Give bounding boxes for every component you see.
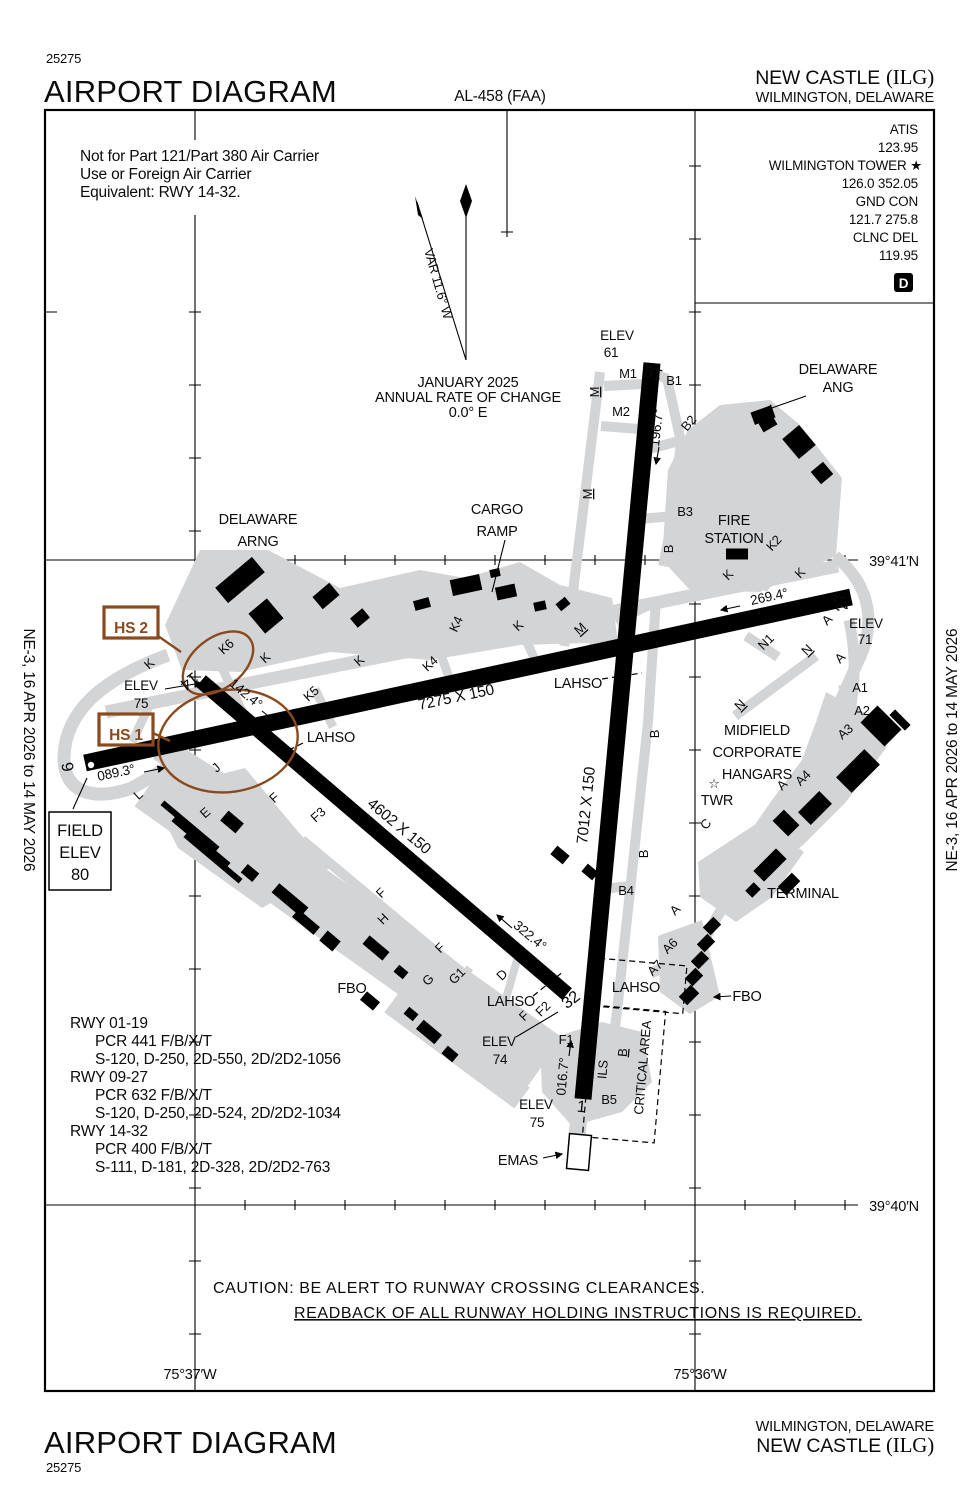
lahso-label: LAHSO	[307, 730, 355, 746]
city-state: WILMINGTON, DELAWARE	[756, 90, 935, 106]
elev-label: ELEV	[600, 328, 634, 343]
magnetic-north-arrowhead	[415, 196, 423, 219]
building	[550, 846, 569, 865]
restriction-note: Not for Part 121/Part 380 Air Carrier Us…	[80, 148, 319, 201]
taxiway-label-b: B	[661, 545, 676, 553]
taxiway-label-f1: F1	[559, 1032, 574, 1047]
true-north-arrowhead	[460, 184, 472, 218]
elev-label: ELEV	[519, 1097, 553, 1112]
variation-date: JANUARY 2025	[417, 375, 518, 391]
hs1-label: HS 1	[109, 727, 143, 744]
magnetic-variation-label: VAR 11.6° W	[421, 247, 456, 322]
footer-title: AIRPORT DIAGRAM	[44, 1425, 337, 1460]
footer-airport-icao: (ILG)	[886, 1433, 934, 1457]
airport-name-text: NEW CASTLE	[755, 67, 880, 89]
atis-d-letter: D	[899, 276, 909, 291]
margin-note-right: NE-3, 16 APR 2026 to 14 MAY 2026	[944, 629, 961, 872]
delaware-ang-label: ANG	[823, 380, 854, 396]
airport-icao: (ILG)	[886, 65, 934, 89]
taxiway-label-a1: A1	[852, 680, 868, 695]
note-line-3: Equivalent: RWY 14-32.	[80, 184, 240, 201]
rwy1-number: 1	[576, 1098, 587, 1117]
runway-data-table: RWY 01-19 PCR 441 F/B/X/T S-120, D-250, …	[70, 1015, 341, 1176]
taxiway-label-a: A	[832, 649, 849, 666]
fire-station-label: FIRE	[718, 513, 751, 529]
rwy32-elev: 74	[493, 1052, 508, 1067]
header: 25275 AIRPORT DIAGRAM AL-458 (FAA) NEW C…	[44, 51, 935, 109]
building-fire-station	[726, 549, 748, 560]
caution-line-2: READBACK OF ALL RUNWAY HOLDING INSTRUCTI…	[294, 1305, 862, 1322]
field-elev-label: FIELD	[57, 822, 103, 840]
field-elev-value: 80	[71, 866, 89, 884]
taxiway-label-b1: B1	[666, 373, 682, 388]
fire-station-label: STATION	[704, 531, 763, 547]
pcr-row: PCR 441 F/B/X/T	[95, 1033, 212, 1050]
pcr-row: PCR 632 F/B/X/T	[95, 1087, 212, 1104]
lahso-label: LAHSO	[612, 980, 660, 996]
footer-chart-number: 25275	[46, 1460, 81, 1475]
rwy19-elev: 61	[604, 345, 619, 360]
caution-note: CAUTION: BE ALERT TO RUNWAY CROSSING CLE…	[213, 1280, 862, 1322]
taxiway-label-a: A	[667, 901, 684, 918]
chart-number: 25275	[46, 51, 81, 66]
rwy-row: RWY 01-19	[70, 1015, 148, 1032]
caution-line-1: CAUTION: BE ALERT TO RUNWAY CROSSING CLE…	[213, 1280, 705, 1297]
emas-label: EMAS	[498, 1153, 538, 1169]
procedure-id: AL-458 (FAA)	[454, 88, 546, 105]
tower-label: WILMINGTON TOWER ★	[769, 158, 922, 173]
taxiway-label-b3: B3	[677, 504, 693, 519]
terminal-label: TERMINAL	[767, 886, 839, 902]
page-title: AIRPORT DIAGRAM	[44, 74, 337, 109]
rwy01-elev: 75	[530, 1115, 545, 1130]
footer: AIRPORT DIAGRAM 25275 WILMINGTON, DELAWA…	[44, 1419, 935, 1475]
ils-label: ILS	[594, 1059, 611, 1080]
elev-label: ELEV	[124, 678, 158, 693]
hs2-label: HS 2	[114, 620, 148, 637]
runway-9-threshold-dot	[88, 762, 94, 768]
comm-frequencies: ATIS 123.95 WILMINGTON TOWER ★ 126.0 352…	[769, 122, 922, 292]
taxiway-label-a2: A2	[854, 703, 870, 718]
rwy27-elev: 71	[858, 632, 873, 647]
taxiway-label-m: M	[587, 387, 602, 398]
clnc-del-freq: 119.95	[879, 248, 918, 263]
north-arrows: VAR 11.6° W JANUARY 2025 ANNUAL RATE OF …	[375, 184, 561, 421]
airport-name: NEW CASTLE(ILG)	[755, 65, 934, 89]
gnd-con-label: GND CON	[856, 194, 918, 209]
taxiway-label-m2: M2	[612, 404, 630, 419]
midfield-hangars-label: MIDFIELD	[724, 723, 790, 739]
clnc-del-label: CLNC DEL	[853, 230, 919, 245]
emas-pad	[567, 1134, 592, 1171]
heading-arrow-27	[721, 606, 740, 610]
latitude-label-north: 39°41′N	[869, 554, 919, 570]
tower-freq: 126.0 352.05	[842, 176, 918, 191]
footer-airport: NEW CASTLE(ILG)	[756, 1433, 934, 1457]
taxiway-label-c: C	[697, 816, 714, 833]
rate-of-change-value: 0.0° E	[449, 405, 488, 421]
cargo-ramp-label: RAMP	[476, 524, 517, 540]
taxiway-label-b: B	[647, 730, 662, 738]
taxiway-label-a: A	[819, 611, 836, 628]
rwy0119-dimensions: 7012 X 150	[574, 766, 599, 845]
heading-arrow-32	[497, 915, 512, 928]
delaware-ang-label: DELAWARE	[799, 362, 878, 378]
elev-label: ELEV	[849, 616, 883, 631]
taxiway-label-b: B	[615, 1048, 631, 1058]
lahso-label: LAHSO	[554, 676, 602, 692]
note-line-1: Not for Part 121/Part 380 Air Carrier	[80, 148, 319, 165]
margin-note-left: NE-3, 16 APR 2026 to 14 MAY 2026	[20, 629, 37, 872]
cargo-ramp-label: CARGO	[471, 502, 523, 518]
taxiway-label-m1: M1	[619, 366, 637, 381]
lahso-label: LAHSO	[487, 994, 535, 1010]
taxiway-label-b: B	[636, 850, 651, 858]
latitude-label-south: 39°40′N	[869, 1199, 919, 1215]
taxiway-label-m: M	[580, 489, 595, 500]
delaware-arng-label: DELAWARE	[219, 512, 298, 528]
field-elev-label: ELEV	[59, 844, 101, 862]
codes-row: S-120, D-250, 2D-550, 2D/2D2-1056	[95, 1051, 341, 1068]
fbo-label: FBO	[337, 981, 366, 997]
rwy14-elev: 75	[134, 696, 149, 711]
tower-label: TWR	[701, 793, 733, 809]
longitude-label-east: 75°36′W	[673, 1367, 727, 1383]
taxiway-label-b5: B5	[601, 1092, 617, 1107]
taxiway-label-b4: B4	[618, 883, 634, 898]
rate-of-change-label: ANNUAL RATE OF CHANGE	[375, 390, 561, 406]
pcr-row: PCR 400 F/B/X/T	[95, 1141, 212, 1158]
tower-star-icon: ☆	[708, 776, 719, 791]
atis-freq: 123.95	[878, 140, 918, 155]
codes-row: S-120, D-250, 2D-524, 2D/2D2-1034	[95, 1105, 341, 1122]
longitude-label-west: 75°37′W	[163, 1367, 217, 1383]
elev-label: ELEV	[482, 1034, 516, 1049]
codes-row: S-111, D-181, 2D-328, 2D/2D2-763	[95, 1159, 330, 1176]
rwy-row: RWY 09-27	[70, 1069, 148, 1086]
fbo-label: FBO	[732, 989, 761, 1005]
footer-airport-name: NEW CASTLE	[756, 1435, 881, 1457]
taxiway-label-f3: F3	[307, 804, 328, 825]
delaware-arng-label: ARNG	[237, 534, 278, 550]
midfield-hangars-label: CORPORATE	[713, 745, 802, 761]
rwy-row: RWY 14-32	[70, 1123, 148, 1140]
gnd-con-freq: 121.7 275.8	[849, 212, 918, 227]
airport-diagram-chart: 25275 AIRPORT DIAGRAM AL-458 (FAA) NEW C…	[0, 0, 978, 1500]
note-line-2: Use or Foreign Air Carrier	[80, 166, 251, 183]
atis-label: ATIS	[890, 122, 918, 137]
